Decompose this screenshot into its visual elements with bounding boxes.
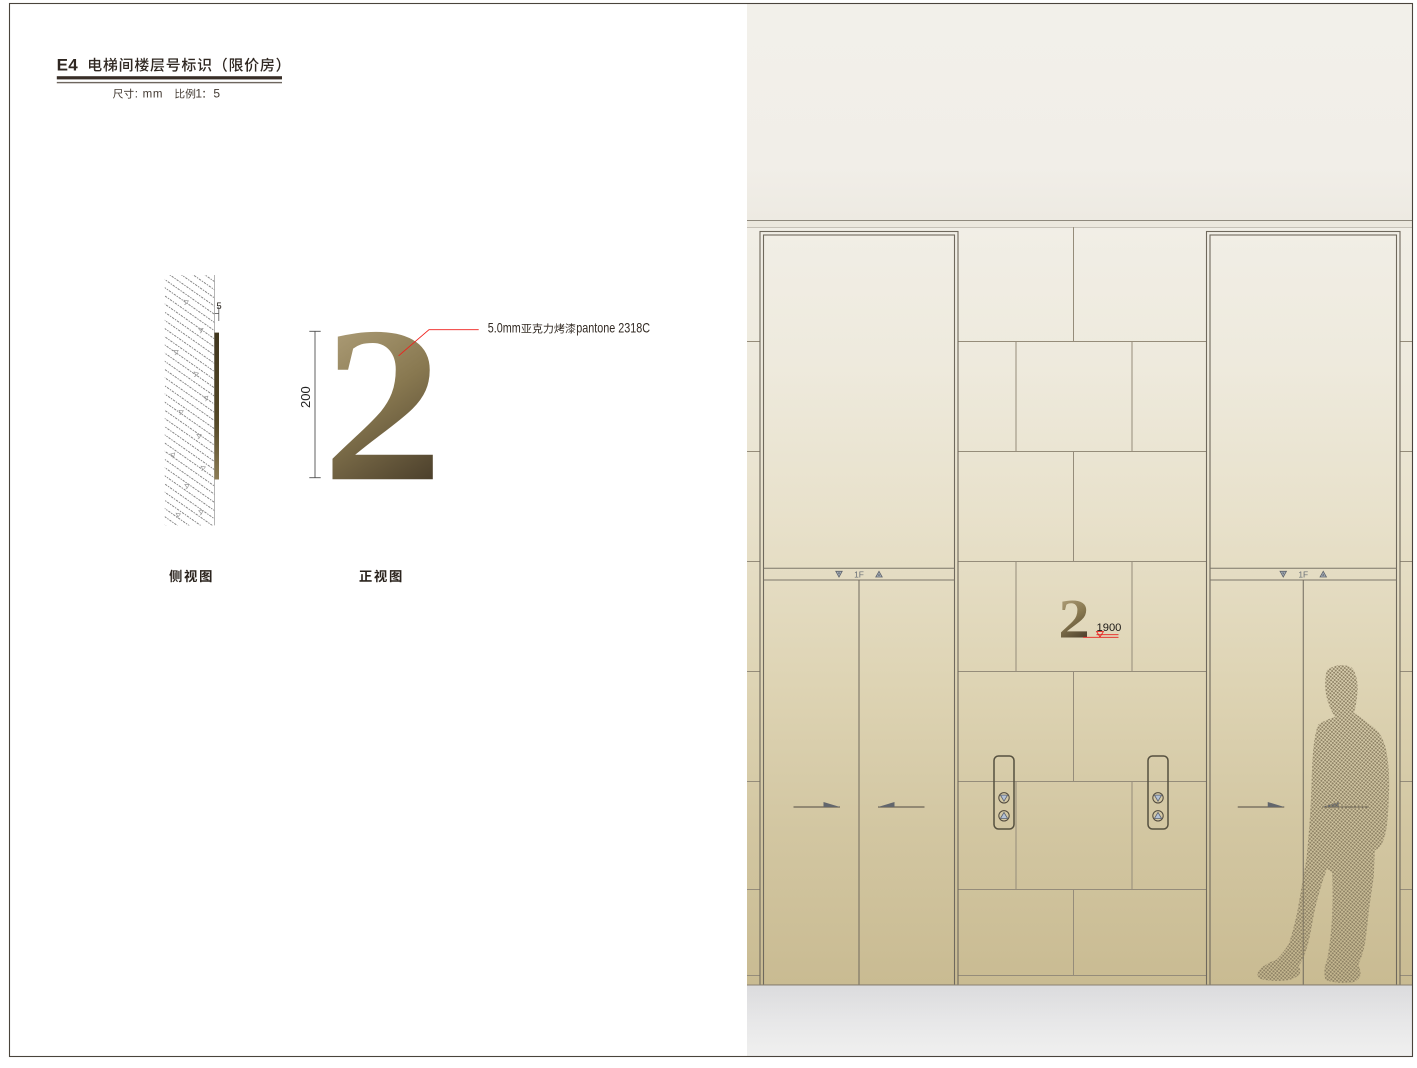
svg-text:pantone 2318C: pantone 2318C (576, 320, 650, 335)
svg-text:1: 1 (195, 87, 202, 101)
svg-text:200: 200 (298, 386, 313, 408)
svg-text:E4: E4 (57, 55, 79, 74)
svg-text:5.0mm: 5.0mm (488, 320, 521, 335)
svg-text:5: 5 (213, 87, 220, 101)
svg-text:1F: 1F (1298, 569, 1308, 579)
svg-text:: mm: : mm (135, 89, 163, 101)
svg-text:1F: 1F (854, 569, 864, 579)
